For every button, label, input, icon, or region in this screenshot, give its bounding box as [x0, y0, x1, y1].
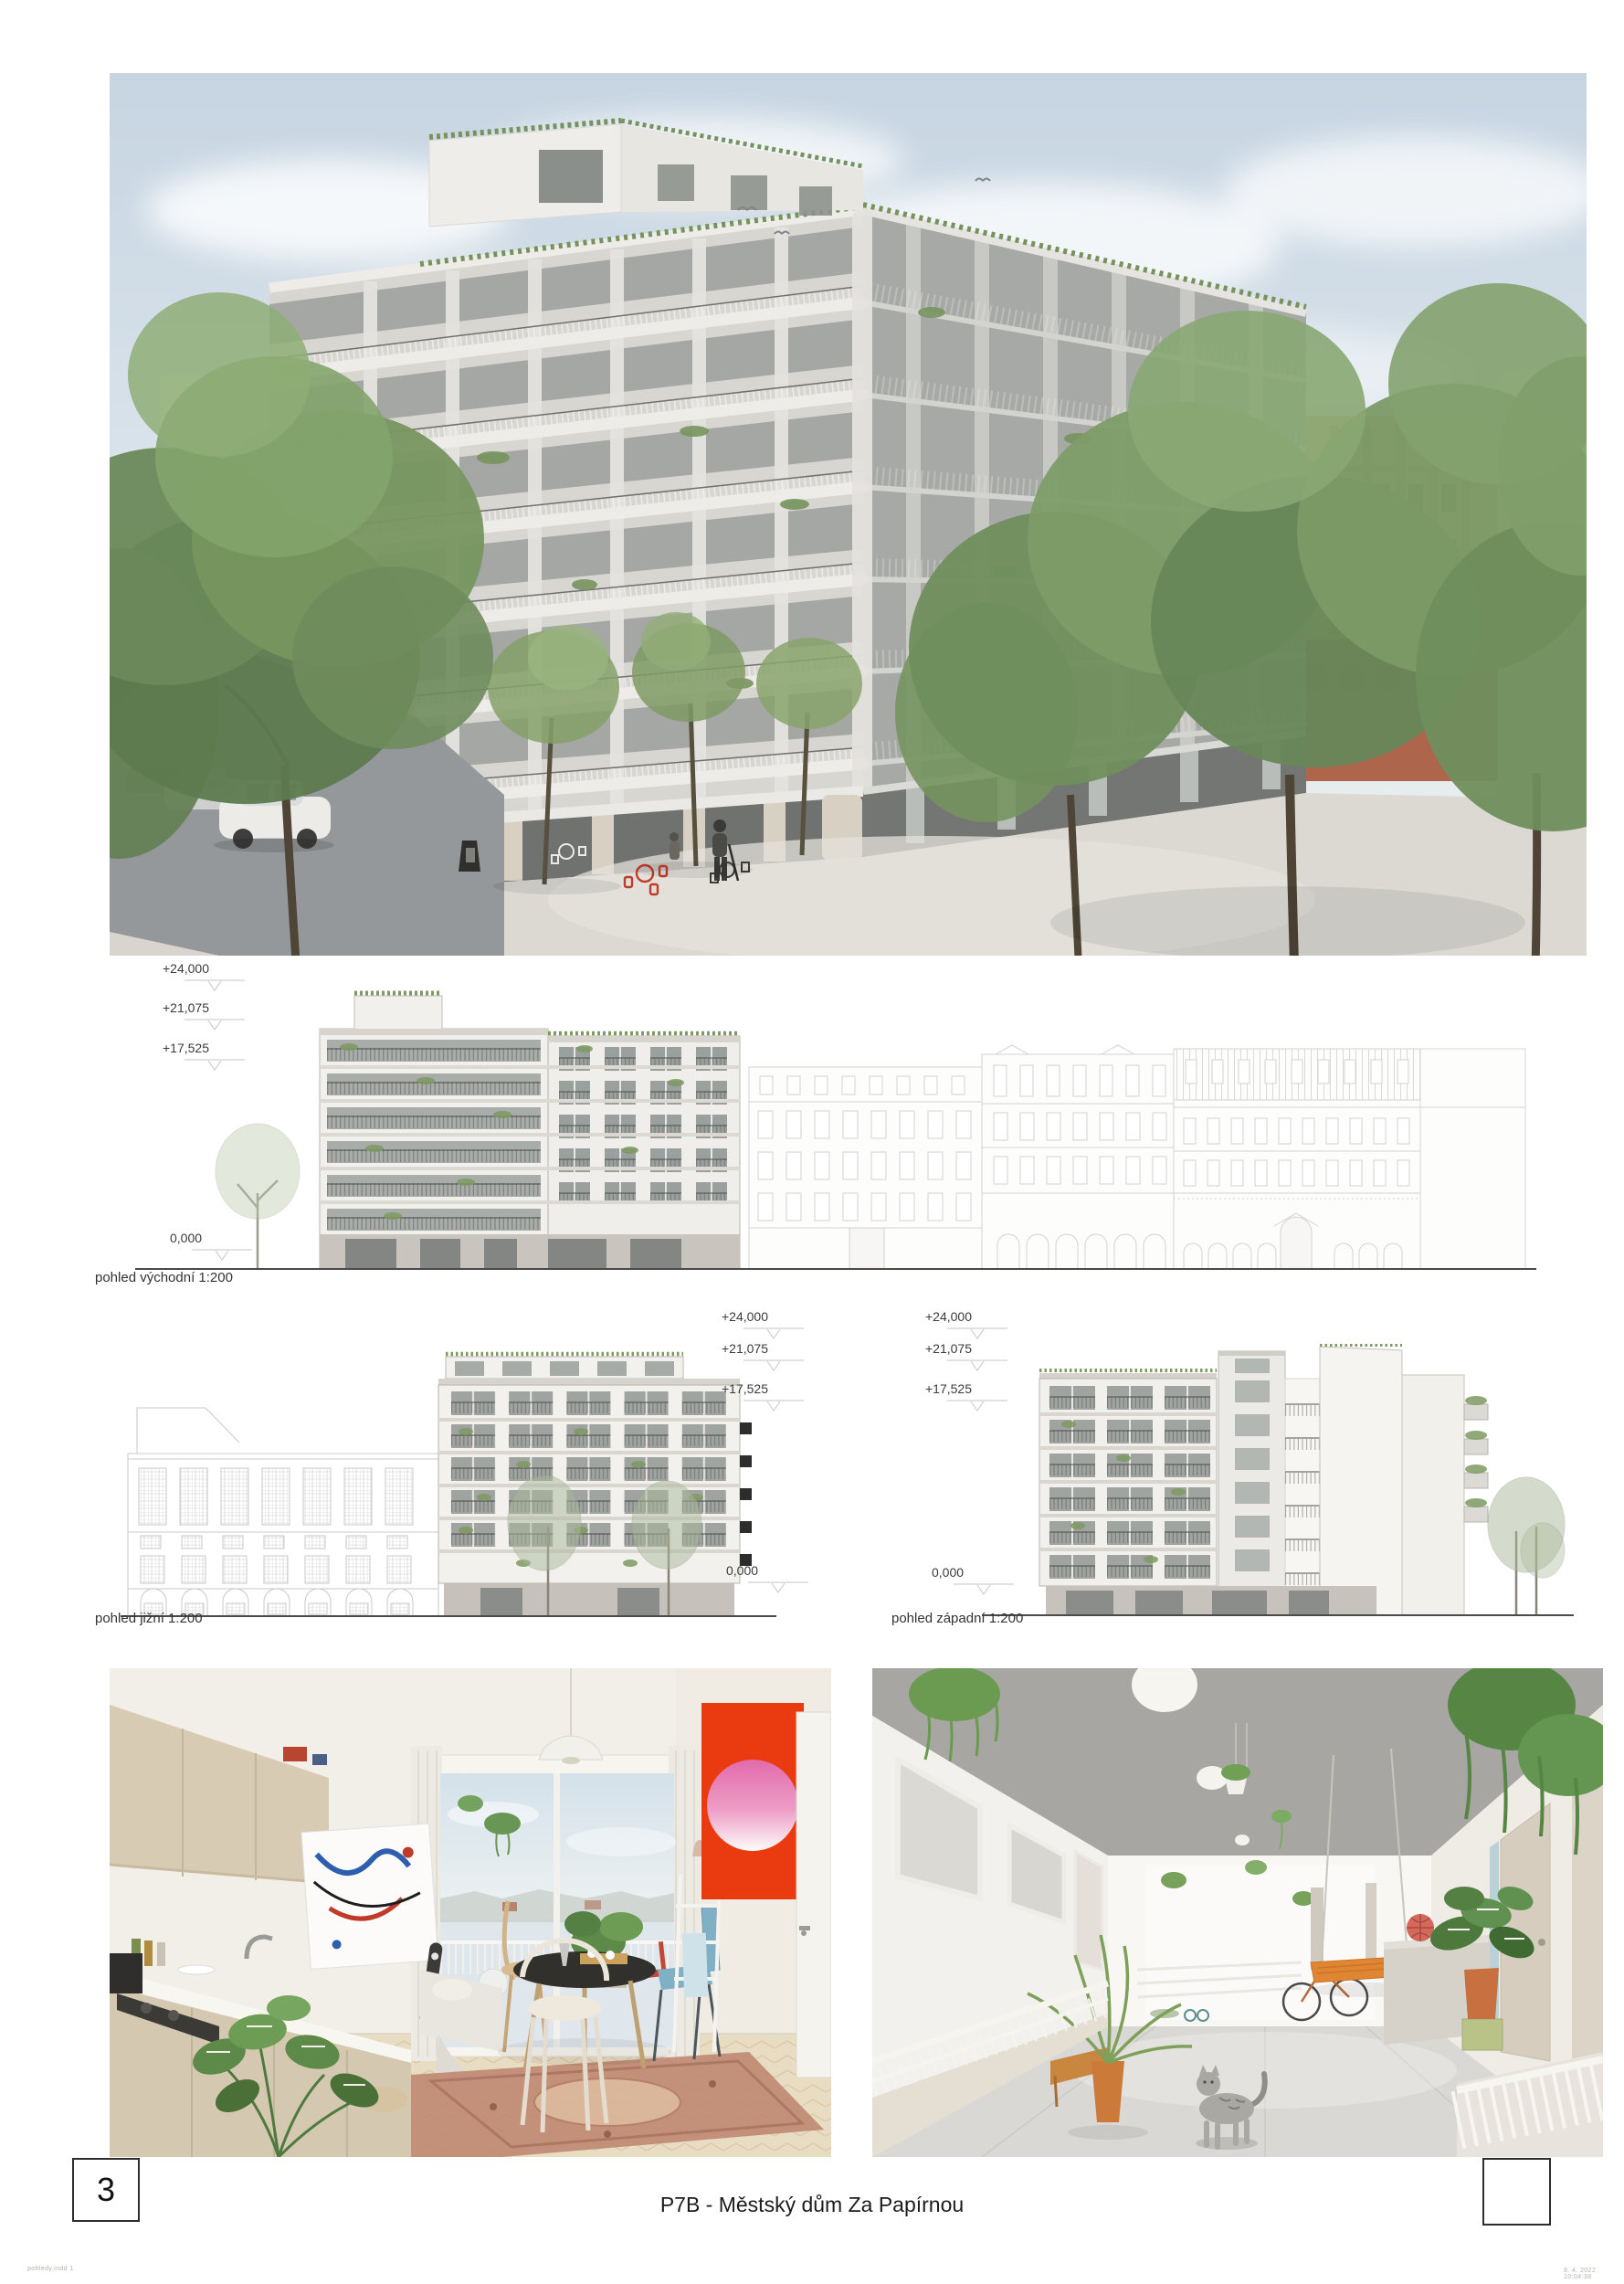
level-marker-west-0: 0,000	[932, 1566, 1014, 1596]
street-rendering-illustration	[110, 73, 1587, 956]
main-render-figure	[110, 73, 1587, 956]
level-label: +17,525	[163, 1041, 209, 1055]
level-label: 0,000	[932, 1565, 964, 1580]
apartment-door	[796, 1712, 831, 2078]
presentation-board: +24,000 +21,075 +17,525 0,000 pohled výc…	[0, 0, 1624, 2284]
level-label: +21,075	[722, 1341, 768, 1356]
elevation-west-drawing	[982, 1344, 1621, 1627]
level-marker-south-21075: +21,075	[722, 1342, 804, 1372]
elevation-caption-west: pohled západní 1:200	[891, 1611, 1023, 1626]
level-label: +17,525	[925, 1381, 972, 1396]
level-marker-east-17525: +17,525	[163, 1042, 245, 1072]
level-marker-east-24000: +24,000	[163, 962, 245, 992]
historic-facade-south	[128, 1408, 438, 1616]
level-label: +24,000	[163, 961, 209, 976]
interior-render-left-figure	[110, 1668, 831, 2157]
elevation-south-drawing	[119, 1344, 813, 1627]
corridor-end	[1108, 1856, 1431, 2026]
elevation-caption-east: pohled východní 1:200	[95, 1270, 233, 1285]
level-label: 0,000	[726, 1563, 758, 1578]
interior-render-right-figure	[872, 1668, 1603, 2157]
new-building-west	[1039, 1345, 1488, 1615]
level-marker-west-24000: +24,000	[925, 1310, 1007, 1340]
level-label: +21,075	[925, 1341, 972, 1356]
elevation-caption-south: pohled jižní 1:200	[95, 1611, 203, 1626]
elevation-east-drawing	[119, 965, 1580, 1298]
stamp-box	[1482, 2158, 1551, 2226]
drawing-trees	[1488, 1477, 1565, 1615]
level-label: 0,000	[170, 1231, 202, 1245]
gallery-rendering	[872, 1668, 1603, 2157]
level-marker-south-24000: +24,000	[722, 1310, 804, 1340]
level-label: +21,075	[163, 1000, 209, 1015]
historic-facades	[749, 1045, 1525, 1269]
level-marker-east-0: 0,000	[170, 1232, 252, 1262]
red-poster-artwork	[701, 1703, 804, 1899]
print-footer-left: pohledy.indd 1	[27, 2266, 74, 2272]
level-label: +24,000	[722, 1309, 768, 1324]
elevation-west-figure	[982, 1344, 1621, 1627]
board-title: P7B - Městský dům Za Papírnou	[0, 2193, 1624, 2217]
level-label: +24,000	[925, 1309, 972, 1324]
print-footer-right: 8. 4. 2022 10:04:38	[1564, 2268, 1624, 2280]
level-marker-south-17525: +17,525	[722, 1382, 804, 1412]
level-marker-west-17525: +17,525	[925, 1382, 1007, 1412]
new-building-east	[320, 993, 740, 1269]
elevation-south-figure	[119, 1344, 813, 1627]
level-marker-west-21075: +21,075	[925, 1342, 1007, 1372]
level-label: +17,525	[722, 1381, 768, 1396]
level-marker-south-0: 0,000	[726, 1564, 808, 1594]
elevation-east-figure	[119, 965, 1580, 1298]
leaning-artwork	[301, 1824, 438, 1969]
level-marker-east-21075: +21,075	[163, 1001, 245, 1031]
new-building-south	[438, 1354, 752, 1616]
interior-rendering	[110, 1668, 831, 2157]
